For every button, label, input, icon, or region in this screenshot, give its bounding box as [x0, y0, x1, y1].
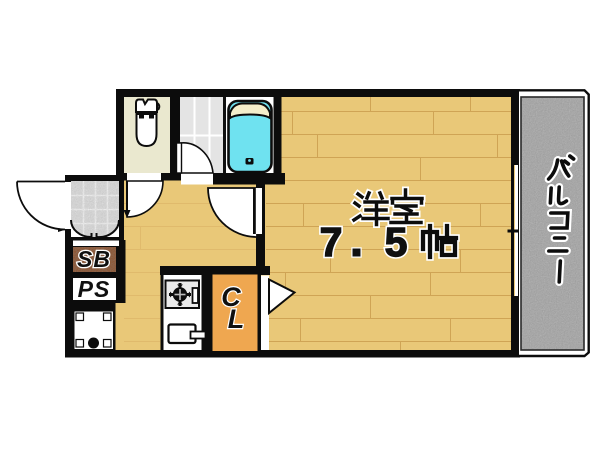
- svg-text:5: 5: [385, 219, 408, 265]
- svg-text:L: L: [228, 304, 245, 334]
- svg-text:SB: SB: [77, 246, 111, 272]
- svg-text:PS: PS: [78, 276, 111, 302]
- svg-text:7: 7: [320, 219, 343, 265]
